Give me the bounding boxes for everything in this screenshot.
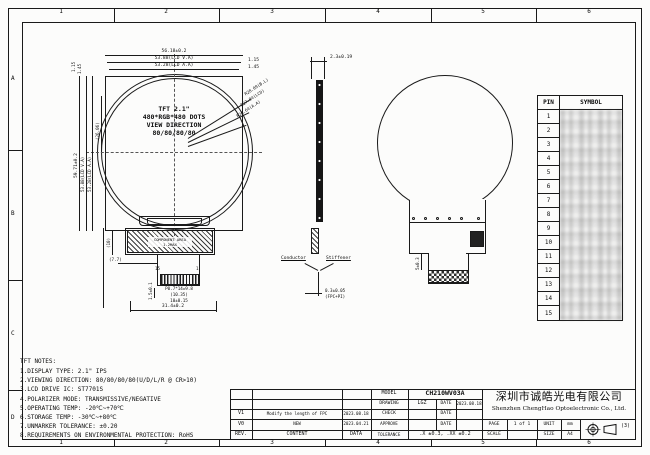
pin-row: 5 bbox=[537, 165, 560, 180]
company-name-en: Shenzhen ChengHao Optoelectronic Co., Lt… bbox=[492, 406, 626, 412]
pin-number: 10 bbox=[545, 239, 552, 246]
pin-row: 12 bbox=[537, 263, 560, 278]
title-block-line bbox=[436, 399, 437, 430]
pin-row: 14 bbox=[537, 291, 560, 306]
approve-label: APPROVE bbox=[380, 422, 398, 427]
page-value: 1 of 1 bbox=[514, 422, 531, 427]
dimension-line bbox=[92, 76, 93, 231]
unit-label: UNIT bbox=[543, 422, 554, 427]
pin-row: 1 bbox=[537, 109, 560, 124]
back-connector-contacts bbox=[428, 270, 469, 283]
frame-col-label: 5 bbox=[481, 9, 485, 16]
pin-row: 6 bbox=[537, 179, 560, 194]
rev-0-date: 2023.04.21 bbox=[343, 422, 368, 427]
dim-left-offset-2: 1.45 bbox=[78, 64, 83, 74]
dimension-line bbox=[130, 310, 216, 311]
note-line: 6.STORAGE TEMP: -30℃~+80℃ bbox=[20, 413, 197, 422]
content-col-label: CONTENT bbox=[286, 432, 307, 438]
frame-col-label: 2 bbox=[164, 440, 168, 447]
rev-1: V1 bbox=[238, 411, 244, 417]
outline-mask bbox=[410, 199, 484, 211]
dim-pin-pitch: P0.7*14=9.8 bbox=[165, 287, 193, 292]
title-block-line bbox=[580, 419, 581, 440]
frame-col-label: 4 bbox=[376, 9, 380, 16]
back-outline-line bbox=[466, 253, 486, 254]
alignment-hole bbox=[436, 217, 439, 220]
extension-line bbox=[311, 57, 312, 79]
dim-fpc-thickness-note: (FPC+PI) bbox=[325, 295, 345, 300]
pin-number: 15 bbox=[545, 310, 552, 317]
pin-number: 8 bbox=[547, 211, 551, 218]
drawing-value: LGZ bbox=[417, 401, 426, 407]
dim-width-va: 53.88(LCD V.A) bbox=[155, 56, 194, 61]
pin-number: 5 bbox=[547, 169, 551, 176]
title-block-line bbox=[371, 389, 372, 440]
pin-number-first: 15 bbox=[155, 267, 160, 272]
stiffener-label: Stiffener bbox=[326, 256, 351, 261]
frame-tick bbox=[431, 440, 432, 447]
dim-fpc-width: (10.35) bbox=[170, 293, 188, 298]
dim-left-offset-1: 1.15 bbox=[72, 62, 77, 72]
dimension-line bbox=[86, 76, 87, 231]
frame-col-label: 1 bbox=[59, 440, 63, 447]
rev-col-label: REV. bbox=[235, 432, 247, 438]
third-angle-projection-icon bbox=[585, 422, 619, 437]
dim-height-aa: 53.28(LCD A.A) bbox=[88, 157, 93, 192]
frame-col-label: 3 bbox=[270, 9, 274, 16]
title-block-line bbox=[230, 409, 482, 410]
extension-line bbox=[216, 301, 217, 312]
back-outline-line bbox=[409, 222, 410, 253]
data-col-label: DATA bbox=[350, 432, 362, 438]
back-outline-line bbox=[485, 200, 486, 222]
frame-tick bbox=[325, 440, 326, 447]
back-outline-line bbox=[409, 200, 410, 222]
dim-thickness: 2.3±0.19 bbox=[330, 55, 352, 60]
dim-height-va: 53.88(LCD V.A) bbox=[81, 157, 86, 192]
title-block-line bbox=[230, 430, 580, 431]
title-block-line bbox=[537, 419, 538, 440]
date-label: DATE bbox=[440, 411, 451, 416]
frame-col-label: 6 bbox=[587, 440, 591, 447]
title-block-line bbox=[507, 419, 508, 440]
bonding-tab-inner bbox=[147, 218, 202, 225]
pin-row: 8 bbox=[537, 207, 560, 222]
frame-row-label: C bbox=[11, 331, 15, 338]
extension-line bbox=[103, 228, 104, 308]
frame-tick bbox=[8, 150, 22, 151]
frame-row-label: D bbox=[11, 415, 15, 422]
dim-height-outline: 59.71±0.2 bbox=[74, 153, 79, 178]
dim-conn-width: 10±0.15 bbox=[170, 299, 188, 304]
dim-component-h: (10) bbox=[107, 238, 112, 248]
dimension-line bbox=[112, 230, 113, 255]
notes-title: TFT NOTES: bbox=[20, 356, 197, 367]
pin-row: 4 bbox=[537, 151, 560, 166]
pin-number: 1 bbox=[547, 113, 551, 120]
frame-tick bbox=[536, 8, 537, 22]
pin-number: 3 bbox=[547, 141, 551, 148]
note-line: 3.LCD DRIVE IC: ST7701S bbox=[20, 385, 197, 394]
frame-tick bbox=[536, 440, 537, 447]
dimension-line bbox=[421, 253, 422, 270]
title-block-line bbox=[230, 389, 231, 440]
conductor-label: Conductor bbox=[281, 256, 306, 261]
page-label: PAGE bbox=[488, 422, 499, 427]
dim-back: 5±0.3 bbox=[416, 257, 421, 270]
tolerance-label: TOLERANCE bbox=[378, 433, 401, 438]
pin-number: 12 bbox=[545, 267, 552, 274]
title-block-line bbox=[408, 389, 409, 440]
alignment-hole bbox=[412, 217, 415, 220]
drawing-sheet: 1 2 3 4 5 6 1 2 3 4 5 6 A B C D TFT 2.1"… bbox=[0, 0, 650, 455]
pin-row: 9 bbox=[537, 221, 560, 236]
fpc-neck-line bbox=[199, 255, 200, 285]
pin-number-last: 1 bbox=[196, 267, 199, 272]
scale-label: SCALE bbox=[487, 432, 501, 437]
frame-col-label: 5 bbox=[481, 440, 485, 447]
pin-table-header-pin: PIN bbox=[537, 95, 560, 110]
model-label: MODEL bbox=[381, 391, 396, 397]
tft-notes: TFT NOTES: 1.DISPLAY TYPE: 2.1" IPS 2.VI… bbox=[20, 356, 197, 441]
back-outline-line bbox=[409, 253, 429, 254]
pin-row: 15 bbox=[537, 305, 560, 321]
frame-col-label: 1 bbox=[59, 9, 63, 16]
frame-tick bbox=[325, 8, 326, 22]
dim-component-offset: (7.7) bbox=[109, 258, 122, 263]
projection-angle-label: (3) bbox=[621, 424, 630, 430]
dim-right-offset-2: 1.45 bbox=[248, 65, 259, 70]
pin-row: 3 bbox=[537, 137, 560, 152]
dim-fpc-thickness: 0.3±0.05 bbox=[325, 289, 345, 294]
drawing-label: DRAWING bbox=[379, 401, 398, 406]
note-line: 5.OPERATING TEMP: -20℃~+70℃ bbox=[20, 404, 197, 413]
note-line: 1.DISPLAY TYPE: 2.1" IPS bbox=[20, 367, 197, 376]
side-profile-bar bbox=[316, 80, 323, 222]
pin-number: 6 bbox=[547, 183, 551, 190]
alignment-hole bbox=[477, 217, 480, 220]
rev-0: V0 bbox=[238, 422, 244, 428]
frame-row-label: A bbox=[11, 76, 15, 83]
frame-tick bbox=[114, 440, 115, 447]
frame-col-label: 4 bbox=[376, 440, 380, 447]
size-value: A4 bbox=[567, 432, 573, 437]
dimension-line bbox=[154, 288, 155, 298]
dim-width-outline: 56.18±0.2 bbox=[162, 49, 187, 54]
alignment-hole bbox=[424, 217, 427, 220]
note-line: 2.VIEWING DIRECTION: 80/80/80/80(U/D/L/R… bbox=[20, 376, 197, 385]
dimension-line bbox=[109, 69, 239, 70]
title-block-line bbox=[230, 399, 482, 400]
frame-col-label: 6 bbox=[587, 9, 591, 16]
note-line: 8.REQUIREMENTS ON ENVIRONMENTAL PROTECTI… bbox=[20, 431, 197, 440]
tolerance-value: .X ±0.3, .XX ±0.2 bbox=[419, 432, 470, 438]
symbol-header-label: SYMBOL bbox=[580, 99, 602, 106]
dim-tab-width: 31.4±0.2 bbox=[162, 304, 184, 309]
pin-number: 4 bbox=[547, 155, 551, 162]
dimension-line bbox=[305, 293, 322, 294]
back-outline-line bbox=[428, 283, 469, 284]
pin-row: 7 bbox=[537, 193, 560, 208]
pin-number: 7 bbox=[547, 197, 551, 204]
pin-number: 11 bbox=[545, 253, 552, 260]
pin-number: 9 bbox=[547, 225, 551, 232]
rev-0-content: NEW bbox=[293, 422, 301, 427]
frame-row-label: B bbox=[11, 211, 15, 218]
alignment-hole bbox=[448, 217, 451, 220]
frame-col-label: 2 bbox=[164, 9, 168, 16]
extension-line bbox=[130, 301, 131, 312]
pin-table-header-symbol: SYMBOL bbox=[559, 95, 623, 110]
frame-tick bbox=[431, 8, 432, 22]
dim-width-aa: 53.28(LCD A.A) bbox=[155, 63, 194, 68]
alignment-hole bbox=[460, 217, 463, 220]
pin-number: 2 bbox=[547, 127, 551, 134]
rev-1-date: 2023.08.18 bbox=[343, 412, 368, 417]
date-label: DATE bbox=[440, 422, 451, 427]
title-block-line bbox=[230, 419, 636, 420]
display-size: TFT 2.1" bbox=[114, 105, 234, 113]
pin-number: 13 bbox=[545, 281, 552, 288]
stiffener-block bbox=[311, 228, 319, 254]
title-block-line bbox=[561, 419, 562, 440]
frame-tick bbox=[8, 280, 22, 281]
back-outline-circle bbox=[377, 75, 513, 211]
frame-col-label: 3 bbox=[270, 440, 274, 447]
dim-center-offset: (26.06) bbox=[96, 122, 101, 140]
pin-row: 2 bbox=[537, 123, 560, 138]
back-component-block bbox=[470, 231, 484, 247]
company-name-cn: 深圳市诚皓光电有限公司 bbox=[496, 391, 623, 403]
dim-right-offset-1: 1.15 bbox=[248, 58, 259, 63]
dimension-line bbox=[79, 76, 80, 231]
pin-row: 11 bbox=[537, 249, 560, 264]
size-label: SIZE bbox=[543, 432, 554, 437]
pin-header-label: PIN bbox=[543, 99, 554, 106]
frame-tick bbox=[219, 8, 220, 22]
connector-pins bbox=[160, 274, 199, 285]
note-line: 7.UNMARKER TOLERANCE: ±0.20 bbox=[20, 422, 197, 431]
centerline-horizontal bbox=[86, 152, 262, 153]
unit-value: mm bbox=[567, 422, 573, 427]
check-label: CHECK bbox=[382, 411, 396, 416]
dimension-line bbox=[118, 263, 157, 264]
drawing-date: 2023.08.18 bbox=[456, 402, 481, 407]
extension-line bbox=[324, 57, 325, 79]
pin-number: 14 bbox=[545, 295, 552, 302]
title-block-line bbox=[252, 389, 253, 440]
model-value: CH210WV03A bbox=[425, 390, 464, 397]
date-label: DATE bbox=[440, 401, 451, 406]
dim-conn-height: 1.5±0.1 bbox=[149, 282, 154, 300]
back-outline-line bbox=[485, 222, 486, 253]
title-block-line bbox=[482, 389, 483, 440]
pin-row: 10 bbox=[537, 235, 560, 250]
symbol-column-redacted bbox=[560, 110, 622, 320]
pin-row: 13 bbox=[537, 277, 560, 292]
frame-tick bbox=[114, 8, 115, 22]
back-outline-line bbox=[409, 222, 486, 223]
frame-tick bbox=[219, 440, 220, 447]
dimension-line bbox=[101, 96, 102, 152]
component-area-label: COMPONENT AREA 1.2MAX bbox=[148, 237, 192, 247]
note-line: 4.POLARIZER MODE: TRANSMISSIVE/NEGATIVE bbox=[20, 395, 197, 404]
rev-1-content: Modify the length of FPC bbox=[267, 412, 328, 417]
